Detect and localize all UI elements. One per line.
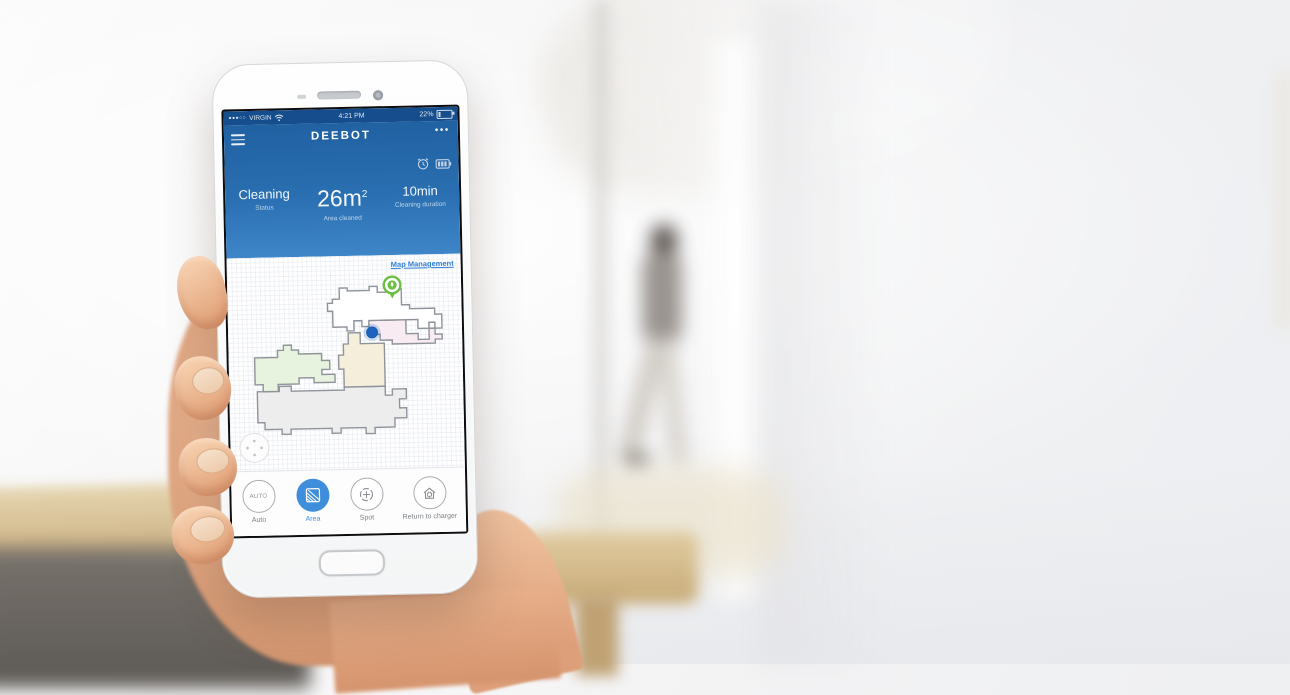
background-ceiling-streaks <box>518 0 1022 232</box>
duration-value: 10min <box>381 183 459 200</box>
person-foot <box>624 454 650 468</box>
app-title: DEEBOT <box>224 128 458 145</box>
fingernail <box>188 514 227 545</box>
background-door-light <box>700 40 770 600</box>
stat-area: 26m2 Area cleaned <box>303 184 382 223</box>
map-management-link[interactable]: Map Management <box>391 259 454 269</box>
person-leg <box>657 337 689 470</box>
person-leg <box>617 336 668 467</box>
schedule-alarm-icon[interactable] <box>416 157 429 170</box>
room-left-green[interactable] <box>254 344 335 392</box>
spot-label: Spot <box>340 514 394 522</box>
more-options-icon[interactable]: ••• <box>435 125 450 136</box>
signal-strength-icon: ●●●○○ <box>229 115 247 121</box>
fingernail <box>195 447 230 475</box>
clock-label: 4:21 PM <box>338 112 364 120</box>
area-label: Area cleaned <box>304 214 382 223</box>
carrier-label: VIRGIN <box>249 114 272 121</box>
manual-control-dpad[interactable] <box>240 433 270 463</box>
app-header: DEEBOT ••• <box>224 121 461 259</box>
home-button[interactable] <box>319 549 386 576</box>
return-charger-icon <box>420 484 438 502</box>
map-view[interactable]: Map Management <box>226 254 464 472</box>
person-head <box>650 224 678 258</box>
nav-bar: DEEBOT ••• <box>224 121 459 156</box>
area-label: Area <box>286 515 340 523</box>
auto-label: Auto <box>232 516 286 524</box>
spot-mode-button[interactable]: Spot <box>339 477 394 534</box>
app-screen: ●●●○○ VIRGIN 4:21 PM 22% <box>223 107 466 537</box>
auto-mode-button[interactable]: AUTO Auto <box>231 479 286 536</box>
return-to-charger-button[interactable]: Return to charger <box>393 476 466 533</box>
background-wall-shade <box>760 0 880 664</box>
background-doorframe <box>588 0 614 580</box>
stat-duration: 10min Cleaning duration <box>381 183 460 222</box>
room-center-tan[interactable] <box>338 332 385 387</box>
phone-screen: ●●●○○ VIRGIN 4:21 PM 22% <box>221 105 468 539</box>
battery-percent-label: 22% <box>419 111 433 118</box>
person-torso <box>642 252 682 344</box>
auto-badge: AUTO <box>250 493 268 499</box>
proximity-sensor <box>297 95 306 99</box>
area-icon <box>304 487 321 504</box>
area-value: 26m2 <box>303 184 382 213</box>
hand-wrist <box>329 586 561 694</box>
status-value: Cleaning <box>225 186 303 203</box>
earpiece-speaker <box>317 91 361 100</box>
background-right-edge <box>1276 70 1290 330</box>
battery-icon <box>436 109 452 118</box>
area-mode-button[interactable]: Area <box>285 478 340 535</box>
stat-status: Cleaning Status <box>225 186 304 225</box>
room-bottom-gray[interactable] <box>257 384 407 436</box>
robot-battery-icon <box>435 158 451 168</box>
duration-label: Cleaning duration <box>381 201 459 210</box>
front-camera <box>373 90 383 100</box>
spot-icon <box>357 485 375 503</box>
return-label: Return to charger <box>394 513 466 522</box>
background-floor-patch <box>556 468 786 578</box>
wifi-icon <box>274 114 283 121</box>
background-person <box>618 210 704 480</box>
fingernail <box>191 365 226 396</box>
status-label: Status <box>225 204 303 213</box>
phone: ●●●○○ VIRGIN 4:21 PM 22% <box>211 59 478 598</box>
mode-controls: AUTO Auto Area <box>231 467 466 537</box>
cleaning-stats: Cleaning Status 26m2 Area cleaned 10min … <box>225 183 460 225</box>
